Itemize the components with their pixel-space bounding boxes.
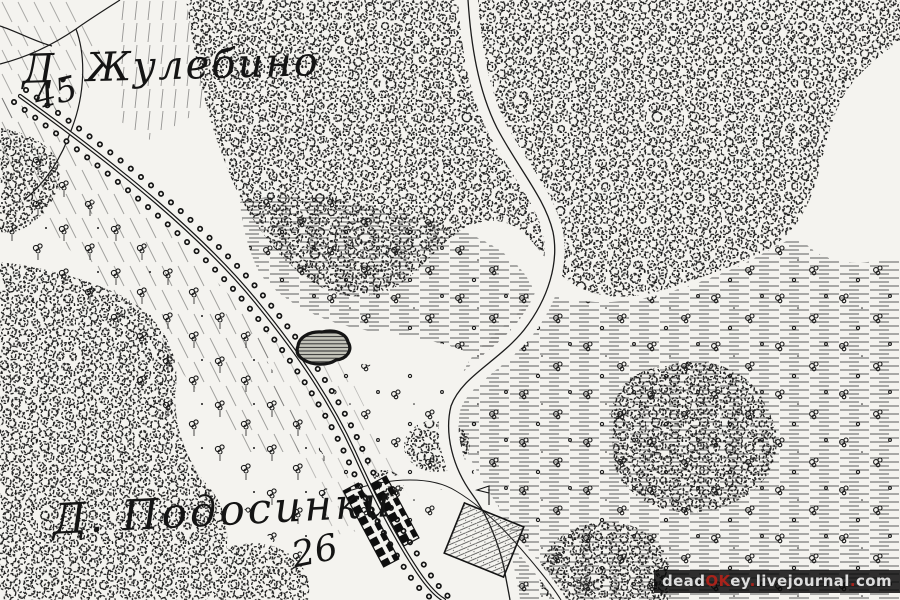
map-canvas: Д. Жулебино 45 Д. Подосинки 26 deadOKey.… xyxy=(0,0,900,600)
watermark-segment: ey xyxy=(730,572,749,590)
watermark-url[interactable]: deadOKey.livejournal.com xyxy=(654,570,900,593)
watermark-segment: OK xyxy=(705,572,730,590)
watermark-segment: com xyxy=(856,572,892,590)
pond xyxy=(297,331,350,364)
watermark-segment: dead xyxy=(662,572,705,590)
settlement-number-podosinki: 26 xyxy=(289,530,341,575)
settlement-number-zhulebino: 45 xyxy=(31,71,81,114)
watermark-segment: livejournal xyxy=(756,572,850,590)
